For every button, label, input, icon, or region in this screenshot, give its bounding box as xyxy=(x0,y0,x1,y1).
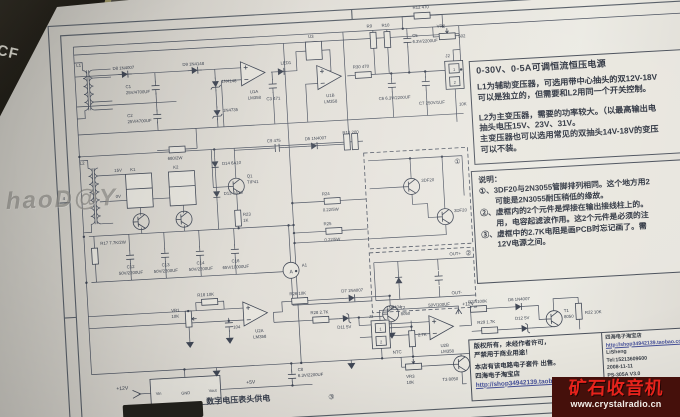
schematic-label: D11 5V xyxy=(337,324,351,330)
schematic-label: LM358 xyxy=(253,334,267,340)
schematic-label: 0.22/5W xyxy=(323,207,340,213)
schematic-label: 1N4735 xyxy=(223,107,239,113)
schematic-label: D13 6A10 xyxy=(224,190,244,196)
dashed-note-boxes xyxy=(364,147,477,313)
schematic-label: R23 xyxy=(243,211,252,216)
schematic-label: R28 2.7K xyxy=(310,309,328,315)
schematic-label: 6.3V/2200UF xyxy=(298,372,324,378)
dashed-box-2 xyxy=(369,247,476,313)
info-box: 0-30V、0-5A可调恒流恒压电源 L1为辅助变压器，可选用带中心抽头的双12… xyxy=(469,49,680,165)
schematic-label: 2.7K xyxy=(418,332,427,337)
schematic-label: D5 1N4007 xyxy=(305,135,328,141)
schematic-label: R9 xyxy=(366,23,372,28)
schematic-label: U2B xyxy=(440,343,449,348)
schematic-label: NTC xyxy=(393,349,402,354)
schematic-label: 8050 xyxy=(401,311,411,317)
schematic-label: 1N4148 xyxy=(221,78,237,84)
schematic-label: VR3 xyxy=(406,374,415,379)
schematic-label: R12 470 xyxy=(412,4,429,10)
schematic-label: +12V xyxy=(116,386,129,393)
schematic-label: T2 xyxy=(400,305,406,310)
schematic-label: 680/2W xyxy=(167,155,183,161)
schematic-label: R10 xyxy=(381,22,390,27)
schematic-label: R13 200 xyxy=(342,129,359,135)
schematic-label: L1 xyxy=(76,63,82,68)
schematic-label: T3 8050 xyxy=(442,376,459,382)
schematic-label: D12 5V xyxy=(515,315,530,321)
schematic-label: C2 xyxy=(127,113,133,118)
schematic-label: C12 xyxy=(127,264,136,269)
schematic-label: U2A xyxy=(255,328,264,333)
schematic-label: OUT+ xyxy=(449,251,461,257)
schematic-label: C5 xyxy=(412,33,418,38)
schematic-label: C1 xyxy=(125,84,131,89)
schematic-content: 4L1D8 1N4007D9 1N4148C125V/4700UFC225V/4… xyxy=(20,0,680,417)
schematic-label: 50V/2200UF xyxy=(154,268,179,274)
schematic-label: LM358 xyxy=(324,98,338,104)
schematic-label: C7 250V/1UF xyxy=(419,99,446,105)
schematic-label: 6.3V/2200UF xyxy=(412,38,438,44)
schematic-label: K1 xyxy=(130,167,136,172)
schematic-label: T1 xyxy=(564,308,570,313)
schematic-label: C16 xyxy=(231,258,240,263)
schematic-label: ② xyxy=(465,249,472,257)
schematic-label: C6 6.3V/2200UF xyxy=(378,94,411,101)
site-watermark: 矿石收音机 www.crystalradio.cn xyxy=(552,377,680,417)
schematic-label: J3 xyxy=(369,314,374,319)
schematic-label: TIP41 xyxy=(247,179,259,185)
schematic-label: ① xyxy=(454,158,461,166)
schematic-label: 10K xyxy=(171,314,179,319)
schematic-label: VR2 xyxy=(437,23,446,28)
schematic-label: Q1 xyxy=(247,173,254,178)
schematic-label: C9 475 xyxy=(267,138,282,144)
schematic-label: D14 6A10 xyxy=(222,160,242,166)
schematic-label: R18 10K xyxy=(197,292,214,298)
schematic-label: 25V/4700UF xyxy=(127,118,152,124)
site-watermark-name: 矿石收音机 xyxy=(551,378,680,399)
schematic-label: ③ xyxy=(328,393,335,401)
schematic-label: D9 1N4148 xyxy=(182,61,205,67)
schematic-label: 104 xyxy=(233,324,241,329)
schematic-label: Vin xyxy=(156,391,162,396)
schematic-label: +12V xyxy=(462,301,475,308)
schematic-label: R22 10K xyxy=(585,309,602,315)
schematic-label: 25V/4700UF xyxy=(126,89,151,95)
paper-watermark: haoD@Y xyxy=(6,184,118,216)
schematic-label: R29 1.7K xyxy=(477,319,495,325)
schematic-label: OUT- xyxy=(451,290,462,296)
schematic-label: R26 10K xyxy=(289,290,306,296)
schematic-label: LM358 xyxy=(248,95,262,101)
schematic-label: +5V xyxy=(246,379,256,386)
notes-box: 说明： ①、3DF20与2N3055管脚排列相同。这个地方用2 可能是2N305… xyxy=(471,159,680,284)
schematic-label: R17 7.7K/2W xyxy=(100,239,127,245)
schematic-label: 3DF20 xyxy=(454,207,468,213)
site-watermark-url: www.crystalradio.cn xyxy=(552,399,680,409)
schematic-label: L2 xyxy=(80,161,86,166)
schematic-label: U1B xyxy=(326,93,335,98)
schematic-label: C3 471 xyxy=(266,96,281,102)
schematic-label: C13 xyxy=(161,262,170,267)
schematic-label: 3DF20 xyxy=(421,177,435,183)
schematic-label: J2 xyxy=(445,53,450,58)
schematic-label: LM358 xyxy=(441,348,455,354)
schematic-label: R25 xyxy=(323,221,332,226)
schematic-label: R24 xyxy=(322,191,331,196)
schematic-label: LED1 xyxy=(280,60,292,66)
schematic-label: R30 470 xyxy=(353,64,370,70)
schematic-label: 10K xyxy=(406,380,414,385)
schematic-label: GND xyxy=(181,390,190,395)
schematic-label: C14 xyxy=(196,260,205,265)
schematic-label: 10K xyxy=(459,101,467,106)
schematic-label: 15V xyxy=(114,168,122,173)
schematic-label: U3 xyxy=(308,34,314,39)
schematic-label: 1K xyxy=(243,218,249,223)
schematic-label: 50V/2200UF xyxy=(189,266,214,272)
photo-of-schematic: CF xyxy=(0,0,680,417)
schematic-label: D7 1N4007 xyxy=(341,287,364,293)
schematic-label: 50V/2200UF xyxy=(119,270,144,276)
schematic-label: A1 xyxy=(302,262,308,267)
schematic-label: VR1 xyxy=(171,308,180,313)
schematic-label: C8 xyxy=(297,367,303,372)
schematic-label: 502 xyxy=(458,33,466,38)
schematic-label: Vout xyxy=(209,388,218,393)
schematic-label: 0.22/5W xyxy=(324,236,341,242)
schematic-label: K2 xyxy=(173,164,179,169)
schematic-label: 65V/10000UF xyxy=(222,264,249,270)
schematic-label: 8050 xyxy=(564,314,574,320)
schematic-label: D6 1N4007 xyxy=(508,296,531,302)
schematic-label: D8 1N4007 xyxy=(112,65,135,71)
schematic-label: U1A xyxy=(250,89,259,94)
